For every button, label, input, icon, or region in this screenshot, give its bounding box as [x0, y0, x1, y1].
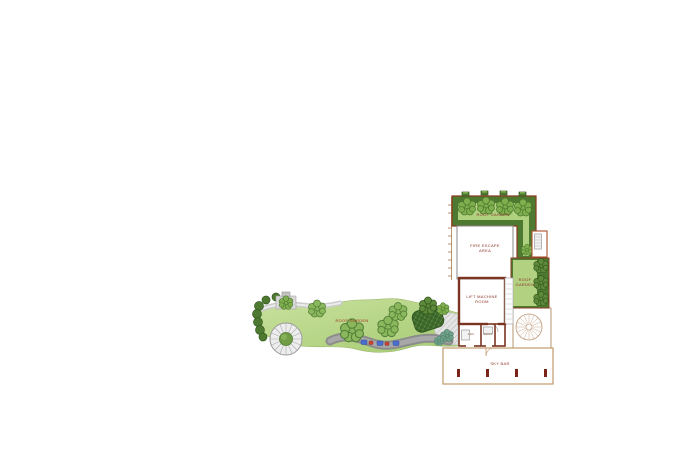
- fire-escape-area-label: FIRE ESCAPE AREA: [462, 243, 508, 253]
- lift-machine-room-label: LIFT MACHINE ROOM: [460, 294, 504, 304]
- top-planter-boxes: [462, 191, 526, 196]
- roof-garden-left-label: ROOF GARDEN: [330, 318, 374, 323]
- roof-garden-right-label: ROOF GARDEN: [512, 277, 538, 287]
- fire-escape-line2: AREA: [462, 248, 508, 253]
- roof-garden-right-line2: GARDEN: [512, 282, 538, 287]
- service-room-ahu-label: AHU: [463, 333, 479, 337]
- roof-plan-canvas: ROOF GARDEN FIRE ESCAPE AREA ROOF GARDEN…: [0, 0, 680, 450]
- lift-machine-line2: ROOM: [460, 299, 504, 304]
- sky-bar-deck: [443, 348, 553, 384]
- roof-plan-drawing: [0, 0, 680, 450]
- right-stair-room: [532, 231, 547, 257]
- sky-bar-label: SKY BAR: [478, 361, 522, 366]
- left-spiral-stair: [270, 323, 302, 355]
- left-roof-garden-area: [253, 292, 459, 355]
- right-spiral-stair: [516, 314, 542, 340]
- building-roof-structures: [443, 191, 553, 384]
- service-room-duct-label: DUCT: [482, 333, 494, 337]
- roof-garden-top-label: ROOF GARDEN: [468, 212, 518, 217]
